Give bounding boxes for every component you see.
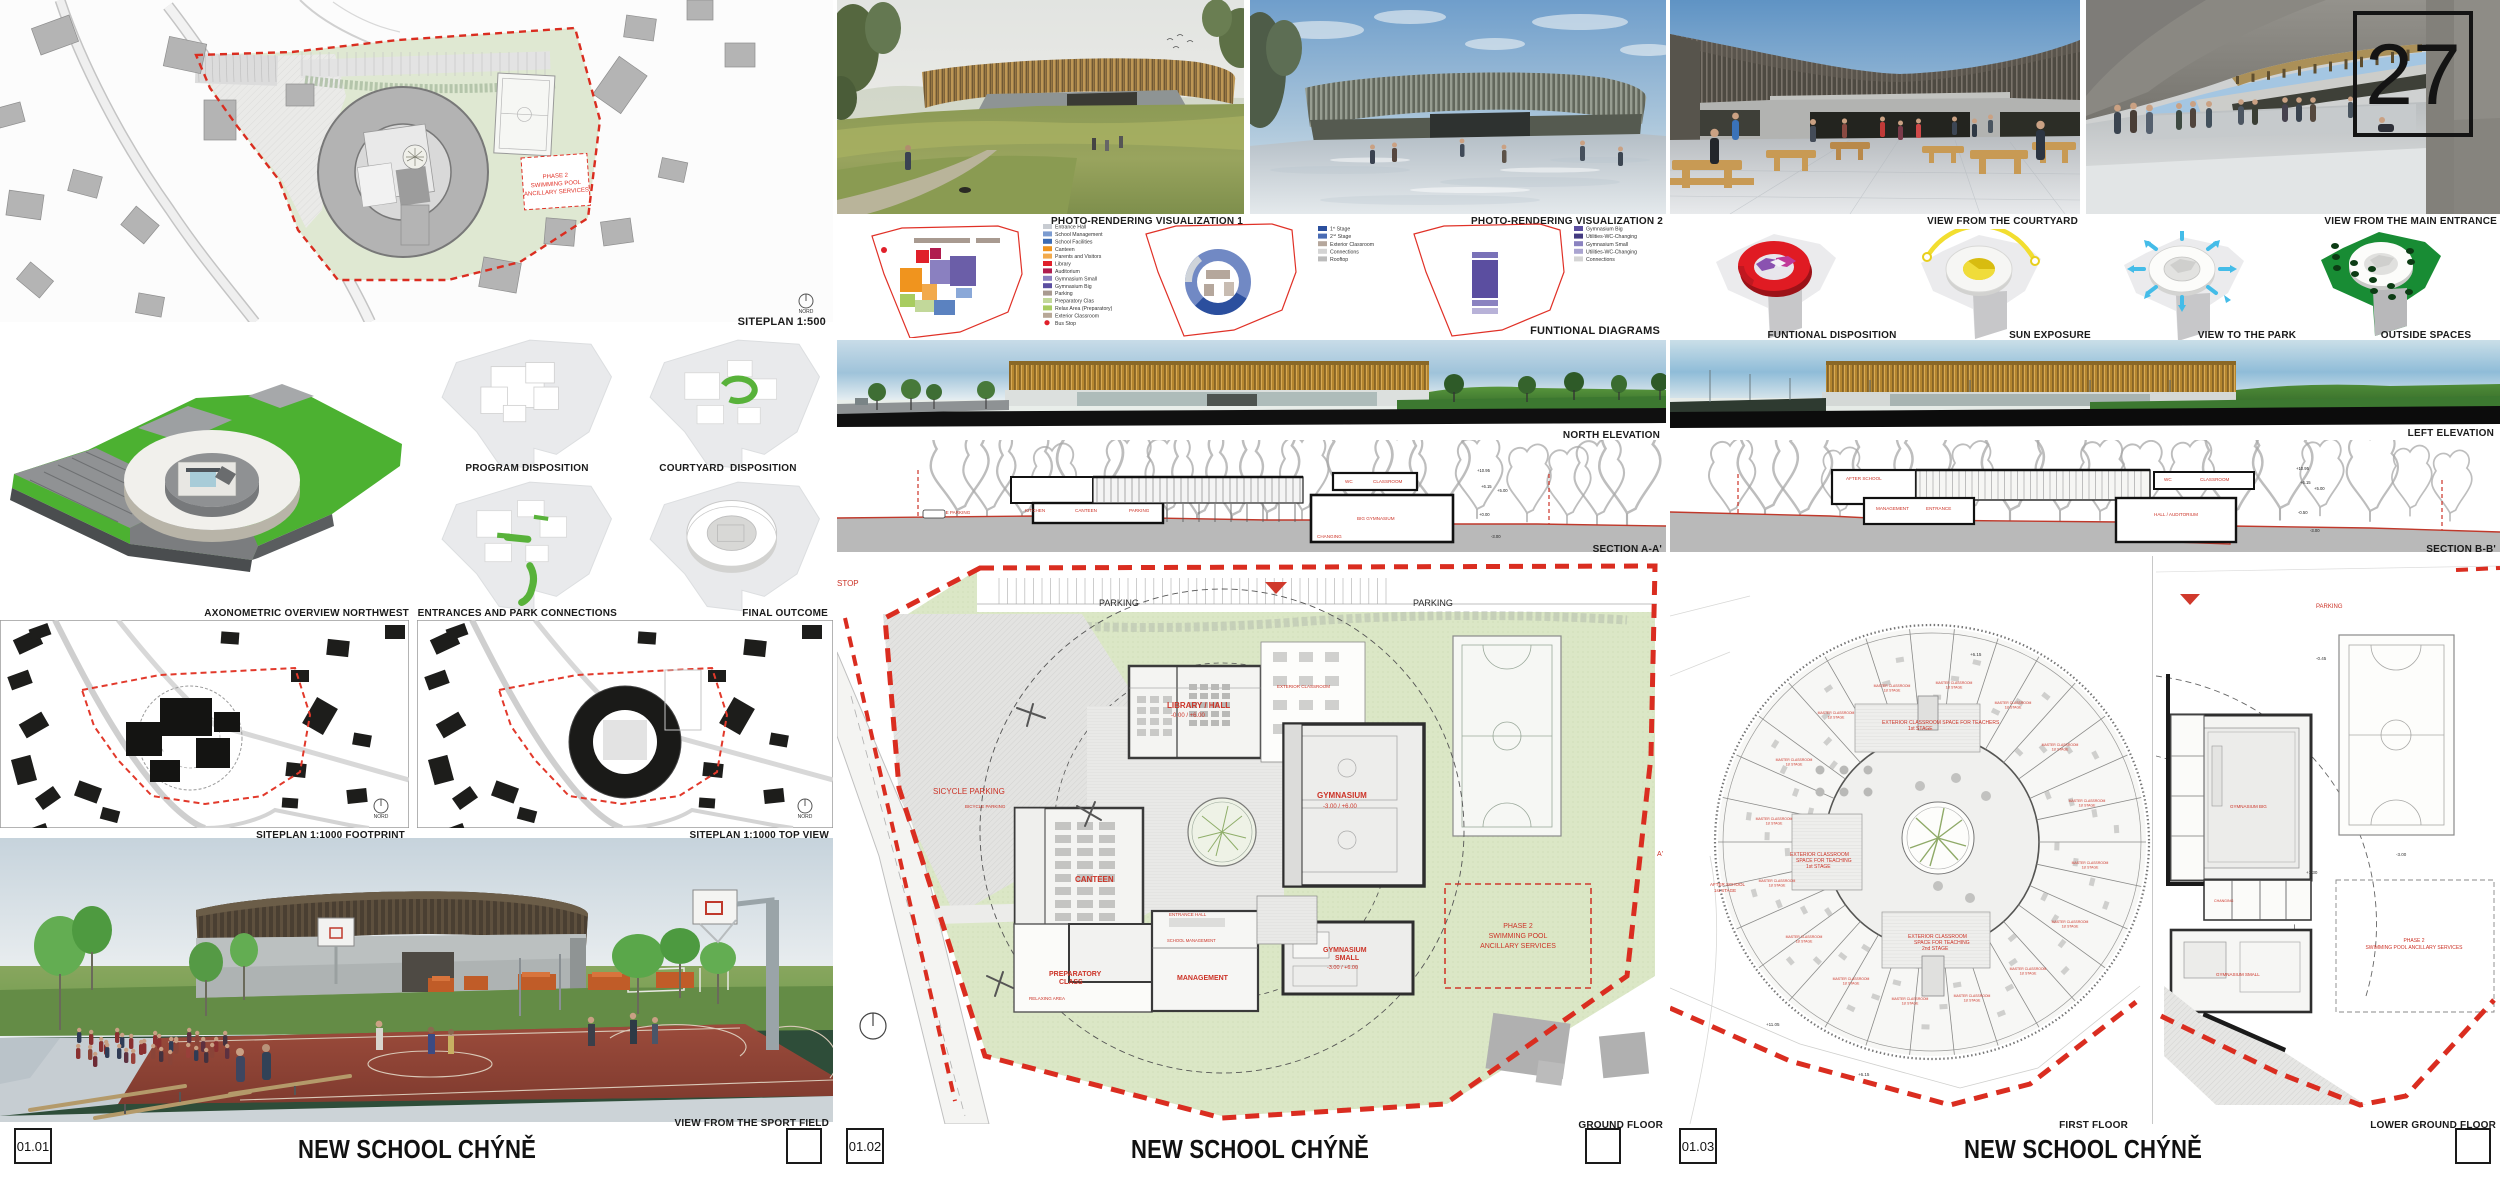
- svg-text:GYMNASIUM: GYMNASIUM: [1317, 791, 1367, 800]
- svg-text:MASTER CLASSROOM: MASTER CLASSROOM: [1756, 817, 1793, 821]
- svg-text:Utilities-WC-Changing: Utilities-WC-Changing: [1586, 234, 1637, 240]
- svg-text:SMALL: SMALL: [1335, 955, 1360, 962]
- svg-text:Gymnasium Small: Gymnasium Small: [1586, 242, 1628, 248]
- svg-text:1st STAGE: 1st STAGE: [1786, 763, 1803, 767]
- svg-text:Gymnasium Big: Gymnasium Big: [1586, 227, 1623, 233]
- svg-text:ENTRANCE: ENTRANCE: [1926, 506, 1951, 511]
- svg-text:+10.95: +10.95: [2296, 466, 2310, 471]
- svg-text:Parents and Visitors: Parents and Visitors: [1055, 254, 1102, 260]
- svg-text:NORD: NORD: [798, 814, 813, 820]
- svg-text:PARKING: PARKING: [1099, 598, 1139, 608]
- svg-text:Library: Library: [1055, 262, 1071, 268]
- svg-text:PHASE 2: PHASE 2: [2403, 938, 2424, 944]
- svg-text:MASTER CLASSROOM: MASTER CLASSROOM: [1818, 711, 1855, 715]
- svg-text:PHASE 2: PHASE 2: [1503, 923, 1533, 930]
- svg-text:+6.15: +6.15: [1970, 652, 1982, 657]
- svg-text:SWIMMING POOL: SWIMMING POOL: [1489, 933, 1548, 940]
- svg-text:AFTER SCHOOL: AFTER SCHOOL: [1846, 476, 1882, 481]
- svg-text:MANAGEMENT: MANAGEMENT: [1177, 975, 1229, 982]
- svg-text:Exterior Classroom: Exterior Classroom: [1330, 242, 1374, 248]
- svg-text:Parking: Parking: [1055, 291, 1073, 297]
- svg-text:1st STAGE: 1st STAGE: [1806, 864, 1831, 870]
- svg-text:-3.00 / +6.00: -3.00 / +6.00: [1323, 804, 1358, 810]
- svg-text:1st STAGE: 1st STAGE: [2082, 866, 2099, 870]
- svg-text:1st STAGE: 1st STAGE: [1714, 888, 1736, 893]
- svg-text:Utilities-WC-Changing: Utilities-WC-Changing: [1586, 249, 1637, 255]
- svg-text:+1.30: +1.30: [2306, 870, 2318, 875]
- svg-text:SCHOOL MANAGEMENT: SCHOOL MANAGEMENT: [1167, 938, 1216, 943]
- svg-text:Preparatory Clas: Preparatory Clas: [1055, 299, 1094, 305]
- svg-text:NORD: NORD: [374, 814, 389, 820]
- svg-text:1st STAGE: 1st STAGE: [1766, 822, 1783, 826]
- svg-text:PREPARATORY: PREPARATORY: [1049, 971, 1102, 978]
- svg-text:MASTER CLASSROOM: MASTER CLASSROOM: [1892, 997, 1929, 1001]
- svg-text:WC: WC: [2164, 477, 2172, 482]
- svg-text:-3.00 / +6.00: -3.00 / +6.00: [1327, 965, 1358, 971]
- svg-text:1st Stage: 1st Stage: [1330, 226, 1350, 233]
- svg-text:2nd Stage: 2nd Stage: [1330, 233, 1351, 240]
- svg-text:MASTER CLASSROOM: MASTER CLASSROOM: [2010, 967, 2047, 971]
- svg-text:GYMNASIUM: GYMNASIUM: [1323, 947, 1367, 954]
- svg-text:WC: WC: [1345, 479, 1353, 484]
- svg-text:Gymnasium Big: Gymnasium Big: [1055, 284, 1092, 290]
- svg-text:MASTER CLASSROOM: MASTER CLASSROOM: [1954, 994, 1991, 998]
- svg-text:+11.05: +11.05: [1766, 1022, 1780, 1027]
- svg-text:CHANGING: CHANGING: [2214, 899, 2234, 903]
- svg-text:1st STAGE: 1st STAGE: [1828, 716, 1845, 720]
- svg-text:BICYCLE PARKING: BICYCLE PARKING: [965, 804, 1006, 809]
- svg-text:STOP: STOP: [837, 579, 859, 588]
- svg-text:PARKING: PARKING: [1129, 508, 1150, 513]
- svg-text:CLASSROOM: CLASSROOM: [1373, 479, 1403, 484]
- svg-text:ANCILLARY SERVICES: ANCILLARY SERVICES: [1480, 943, 1556, 950]
- svg-text:1st STAGE: 1st STAGE: [1908, 726, 1933, 732]
- svg-text:1st STAGE: 1st STAGE: [1902, 1002, 1919, 1006]
- svg-text:+6.15: +6.15: [2300, 480, 2311, 485]
- svg-text:MASTER CLASSROOM: MASTER CLASSROOM: [1936, 681, 1973, 685]
- svg-text:SWIMMING POOL ANCILLARY SERVIC: SWIMMING POOL ANCILLARY SERVICES: [2365, 945, 2463, 951]
- svg-text:27: 27: [2365, 27, 2461, 123]
- svg-text:1st STAGE: 1st STAGE: [2005, 706, 2022, 710]
- svg-text:MASTER CLASSROOM: MASTER CLASSROOM: [1759, 879, 1796, 883]
- svg-text:+5.00: +5.00: [2314, 486, 2325, 491]
- svg-text:HALL / AUDITORIUM: HALL / AUDITORIUM: [2154, 512, 2198, 517]
- svg-text:2nd STAGE: 2nd STAGE: [1922, 946, 1949, 952]
- svg-text:MANAGEMENT: MANAGEMENT: [1876, 506, 1909, 511]
- svg-text:PARKING: PARKING: [2316, 604, 2343, 610]
- svg-text:Auditorium: Auditorium: [1055, 269, 1080, 275]
- svg-text:1st STAGE: 1st STAGE: [1946, 686, 1963, 690]
- svg-text:A': A': [1657, 851, 1663, 858]
- svg-text:1st STAGE: 1st STAGE: [1884, 689, 1901, 693]
- svg-text:1st STAGE: 1st STAGE: [2062, 925, 2079, 929]
- svg-text:MASTER CLASSROOM: MASTER CLASSROOM: [2042, 743, 2079, 747]
- svg-text:+6.15: +6.15: [1858, 1072, 1870, 1077]
- svg-text:EXTERIOR CLASSROOM SPACE FOR T: EXTERIOR CLASSROOM SPACE FOR TEACHERS: [1882, 720, 2000, 726]
- svg-text:-3.00: -3.00: [2310, 528, 2320, 533]
- svg-text:Connections: Connections: [1586, 257, 1615, 263]
- svg-text:1st STAGE: 1st STAGE: [2052, 748, 2069, 752]
- svg-text:Gymnasium Small: Gymnasium Small: [1055, 276, 1097, 282]
- svg-text:Canteen: Canteen: [1055, 247, 1075, 253]
- svg-text:MASTER CLASSROOM: MASTER CLASSROOM: [1776, 758, 1813, 762]
- svg-text:+10.95: +10.95: [1477, 468, 1491, 473]
- svg-text:-0.00 / +6.00: -0.00 / +6.00: [1171, 713, 1206, 719]
- svg-text:Connections: Connections: [1330, 249, 1359, 255]
- svg-text:School Management: School Management: [1055, 232, 1103, 238]
- svg-text:+0.00: +0.00: [1479, 512, 1490, 517]
- svg-text:CLASSROOM: CLASSROOM: [2200, 477, 2230, 482]
- svg-text:PARKING: PARKING: [1413, 598, 1453, 608]
- svg-text:CHANGING: CHANGING: [1317, 534, 1342, 539]
- svg-text:MASTER CLASSROOM: MASTER CLASSROOM: [1874, 684, 1911, 688]
- svg-text:Bus Stop: Bus Stop: [1055, 321, 1076, 327]
- svg-text:1st STAGE: 1st STAGE: [1796, 940, 1813, 944]
- svg-text:Exterior Classroom: Exterior Classroom: [1055, 313, 1099, 319]
- svg-text:BIG GYMNASIUM: BIG GYMNASIUM: [1357, 516, 1395, 521]
- svg-text:NORD: NORD: [799, 309, 814, 315]
- svg-text:1st STAGE: 1st STAGE: [1843, 982, 1860, 986]
- svg-text:Relax Area (Preparatory): Relax Area (Preparatory): [1055, 306, 1113, 312]
- svg-text:MASTER CLASSROOM: MASTER CLASSROOM: [2069, 799, 2106, 803]
- svg-text:MASTER CLASSROOM: MASTER CLASSROOM: [2052, 920, 2089, 924]
- svg-text:MASTER CLASSROOM: MASTER CLASSROOM: [1786, 935, 1823, 939]
- svg-text:School Facilities: School Facilities: [1055, 239, 1093, 245]
- svg-text:LIBRARY / HALL: LIBRARY / HALL: [1167, 701, 1230, 710]
- svg-text:-0.50: -0.50: [2298, 510, 2308, 515]
- svg-text:1st STAGE: 1st STAGE: [1964, 999, 1981, 1003]
- svg-text:KITCHEN: KITCHEN: [1025, 508, 1045, 513]
- svg-text:1st STAGE: 1st STAGE: [2020, 972, 2037, 976]
- svg-text:AFTER SCHOOL: AFTER SCHOOL: [1710, 882, 1746, 887]
- svg-text:Entrance Hall: Entrance Hall: [1055, 225, 1086, 231]
- svg-text:Rooftop: Rooftop: [1330, 257, 1348, 263]
- svg-text:-3.00: -3.00: [1491, 534, 1501, 539]
- svg-text:CANTEEN: CANTEEN: [1075, 508, 1097, 513]
- svg-text:1st STAGE: 1st STAGE: [2079, 804, 2096, 808]
- svg-text:-3.00: -3.00: [2396, 852, 2407, 857]
- svg-text:1st STAGE: 1st STAGE: [1769, 884, 1786, 888]
- svg-text:ENTRANCE HALL: ENTRANCE HALL: [1169, 912, 1207, 917]
- svg-text:MASTER CLASSROOM: MASTER CLASSROOM: [2072, 861, 2109, 865]
- svg-text:GYMNASIUM SMALL: GYMNASIUM SMALL: [2216, 972, 2260, 977]
- svg-text:-0.45: -0.45: [2316, 656, 2327, 661]
- svg-text:SICYCLE PARKING: SICYCLE PARKING: [933, 787, 1005, 796]
- svg-text:CLASS: CLASS: [1059, 979, 1083, 986]
- svg-text:EXTERIOR CLASSROOM: EXTERIOR CLASSROOM: [1277, 684, 1330, 689]
- svg-text:MASTER CLASSROOM: MASTER CLASSROOM: [1833, 977, 1870, 981]
- svg-text:+6.15: +6.15: [1481, 484, 1492, 489]
- svg-text:CANTEEN: CANTEEN: [1075, 875, 1114, 884]
- svg-text:RELAXING AREA: RELAXING AREA: [1029, 996, 1065, 1001]
- svg-text:MASTER CLASSROOM: MASTER CLASSROOM: [1995, 701, 2032, 705]
- svg-text:GYMNASIUM BIG: GYMNASIUM BIG: [2230, 804, 2267, 809]
- svg-text:+5.00: +5.00: [1497, 488, 1508, 493]
